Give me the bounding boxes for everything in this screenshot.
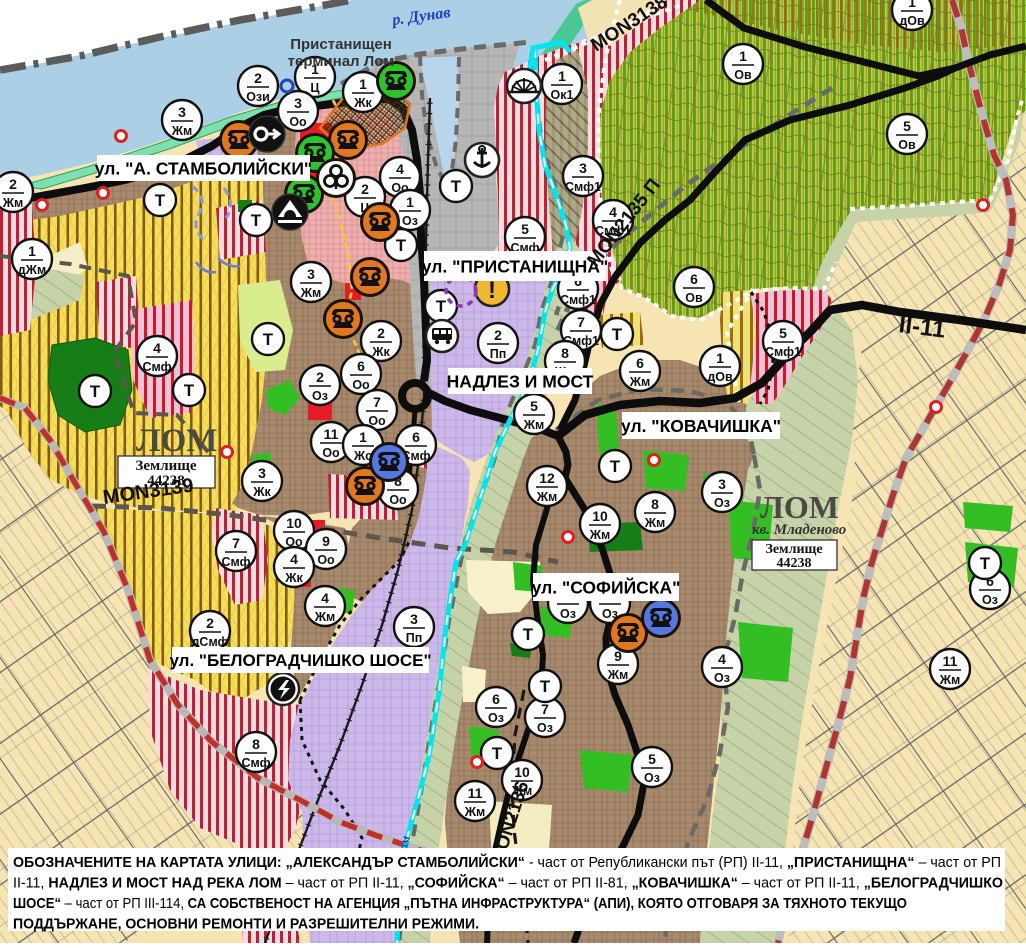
svg-text:НАДЛЕЗ И МОСТ: НАДЛЕЗ И МОСТ <box>447 371 594 391</box>
svg-text:Оз: Оз <box>982 593 998 607</box>
svg-text:2: 2 <box>206 615 214 631</box>
svg-text:!: ! <box>488 277 496 304</box>
svg-text:Т: Т <box>436 297 447 316</box>
svg-text:Оо: Оо <box>389 493 407 507</box>
svg-text:6: 6 <box>690 271 698 287</box>
svg-text:Оо: Оо <box>322 446 340 460</box>
svg-text:ЛОМ: ЛОМ <box>136 423 217 459</box>
svg-text:6: 6 <box>357 358 365 374</box>
svg-text:Ок1: Ок1 <box>551 88 574 102</box>
svg-text:Оо: Оо <box>352 378 370 392</box>
svg-text:4: 4 <box>396 161 404 177</box>
svg-text:1: 1 <box>739 48 747 64</box>
svg-text:Оз: Оз <box>312 389 328 403</box>
svg-text:Оз: Оз <box>644 771 660 785</box>
svg-text:II-11: II-11 <box>897 311 947 343</box>
svg-text:6: 6 <box>636 355 644 371</box>
svg-text:Ц: Ц <box>310 81 320 95</box>
svg-text:Т: Т <box>263 330 274 349</box>
svg-text:1: 1 <box>406 194 414 210</box>
svg-text:дЖм: дЖм <box>18 263 46 277</box>
svg-text:Т: Т <box>540 677 551 696</box>
svg-text:Пристанищен: Пристанищен <box>290 36 392 53</box>
svg-text:Жм: Жм <box>939 673 961 687</box>
svg-text:Жм: Жм <box>314 610 336 624</box>
svg-text:3: 3 <box>294 95 302 111</box>
svg-text:Т: Т <box>523 625 534 644</box>
svg-text:Смф: Смф <box>241 756 270 770</box>
svg-text:Оз: Оз <box>402 214 418 228</box>
svg-text:дСмф: дСмф <box>192 635 229 649</box>
svg-text:2: 2 <box>361 181 369 197</box>
svg-text:Т: Т <box>612 325 623 344</box>
svg-text:6: 6 <box>412 429 420 445</box>
svg-text:2: 2 <box>254 70 262 86</box>
svg-text:ЛОМ: ЛОМ <box>760 489 839 525</box>
svg-text:Оо: Оо <box>289 115 307 129</box>
svg-text:Жм: Жм <box>464 805 486 819</box>
svg-text:1: 1 <box>908 0 916 10</box>
svg-text:Оз: Оз <box>560 607 576 621</box>
svg-text:Оз: Оз <box>714 671 730 685</box>
svg-text:10: 10 <box>592 508 608 524</box>
svg-text:10: 10 <box>514 764 530 780</box>
svg-text:Смф: Смф <box>142 360 171 374</box>
svg-text:2: 2 <box>377 325 385 341</box>
svg-text:1: 1 <box>28 243 36 259</box>
svg-text:ул. "А. СТАМБОЛИЙСКИ": ул. "А. СТАМБОЛИЙСКИ" <box>95 157 312 178</box>
svg-text:3: 3 <box>178 104 186 120</box>
svg-text:Жм: Жм <box>629 375 651 389</box>
svg-text:Жм: Жм <box>644 516 666 530</box>
svg-text:Жк: Жк <box>353 96 372 110</box>
svg-text:1: 1 <box>558 68 566 84</box>
svg-text:Жм: Жм <box>589 528 611 542</box>
svg-text:ул. "ПРИСТАНИЩНА": ул. "ПРИСТАНИЩНА" <box>422 256 609 276</box>
svg-text:44238: 44238 <box>777 556 812 571</box>
svg-text:Ов: Ов <box>685 291 703 305</box>
svg-text:Жк: Жк <box>371 345 390 359</box>
svg-text:5: 5 <box>903 118 911 134</box>
svg-text:2: 2 <box>494 327 502 343</box>
svg-text:Пп: Пп <box>490 347 507 361</box>
svg-text:Ов: Ов <box>898 138 916 152</box>
svg-text:ПОДДЪРЖАНЕ, ОСНОВНИ РЕМОНТИ И: ПОДДЪРЖАНЕ, ОСНОВНИ РЕМОНТИ И РАЗРЕШИТЕЛ… <box>13 916 479 933</box>
svg-text:ул. "БЕЛОГРАДЧИШКО ШОСЕ": ул. "БЕЛОГРАДЧИШКО ШОСЕ" <box>169 651 431 670</box>
svg-text:Землище: Землище <box>135 458 197 474</box>
svg-text:Оз: Оз <box>714 496 730 510</box>
svg-text:Т: Т <box>251 211 262 230</box>
svg-text:3: 3 <box>579 160 587 176</box>
svg-text:3: 3 <box>410 611 418 627</box>
svg-text:Т: Т <box>90 382 101 401</box>
svg-text:Жк: Жк <box>252 485 271 499</box>
svg-text:7: 7 <box>232 535 240 551</box>
svg-text:5: 5 <box>648 751 656 767</box>
svg-text:Жм: Жм <box>523 418 545 432</box>
svg-text:10: 10 <box>286 515 302 531</box>
svg-text:Т: Т <box>980 554 991 573</box>
svg-text:дОв: дОв <box>707 370 733 384</box>
svg-text:Т: Т <box>155 191 166 210</box>
svg-text:Жм: Жм <box>171 124 193 138</box>
svg-text:ОБОЗНАЧЕНИТЕ НА КАРТАТА УЛИЦИ:: ОБОЗНАЧЕНИТЕ НА КАРТАТА УЛИЦИ: „АЛЕКСАНД… <box>13 853 1001 871</box>
svg-text:Жм: Жм <box>300 286 322 300</box>
svg-text:3: 3 <box>258 465 266 481</box>
svg-text:Смф1: Смф1 <box>560 293 596 307</box>
svg-text:7: 7 <box>577 314 585 330</box>
svg-text:Пп: Пп <box>406 631 423 645</box>
svg-text:5: 5 <box>779 325 787 341</box>
svg-text:Оо: Оо <box>317 553 335 567</box>
svg-text:Т: Т <box>492 744 503 763</box>
svg-text:Ози: Ози <box>246 90 270 104</box>
svg-text:11: 11 <box>324 426 339 442</box>
svg-text:8: 8 <box>252 736 260 752</box>
svg-text:8: 8 <box>651 496 659 512</box>
svg-text:7: 7 <box>541 701 549 717</box>
svg-text:12: 12 <box>539 470 555 486</box>
svg-text:5: 5 <box>530 398 538 414</box>
svg-text:4: 4 <box>321 590 329 606</box>
svg-text:Смф: Смф <box>221 555 250 569</box>
svg-text:4: 4 <box>153 340 161 356</box>
svg-text:2: 2 <box>316 369 324 385</box>
svg-text:2: 2 <box>9 176 17 192</box>
svg-text:Жм: Жм <box>2 196 24 210</box>
svg-text:1: 1 <box>359 76 367 92</box>
svg-text:1: 1 <box>716 350 724 366</box>
svg-text:терминал Лом: терминал Лом <box>288 53 395 70</box>
svg-text:11: 11 <box>468 785 483 801</box>
svg-text:3: 3 <box>307 266 315 282</box>
svg-text:Жм: Жм <box>607 668 629 682</box>
svg-text:5: 5 <box>521 221 529 237</box>
svg-text:Жк: Жк <box>284 571 303 585</box>
svg-text:Землище: Землище <box>765 542 822 557</box>
svg-text:Смф1: Смф1 <box>565 180 601 194</box>
svg-text:9: 9 <box>322 533 330 549</box>
svg-text:7: 7 <box>373 394 381 410</box>
svg-text:Т: Т <box>610 457 621 476</box>
svg-text:II-11, НАДЛЕЗ И МОСТ НАД РЕКА: II-11, НАДЛЕЗ И МОСТ НАД РЕКА ЛОМ – част… <box>13 874 1003 892</box>
svg-text:4: 4 <box>718 651 726 667</box>
svg-text:ул. "КОВАЧИШКА": ул. "КОВАЧИШКА" <box>621 416 781 436</box>
svg-text:Т: Т <box>396 236 407 255</box>
svg-text:Ов: Ов <box>734 68 752 82</box>
svg-text:3: 3 <box>718 476 726 492</box>
svg-text:Оз: Оз <box>488 711 504 725</box>
svg-text:11: 11 <box>943 653 958 669</box>
svg-text:6: 6 <box>492 691 500 707</box>
svg-text:8: 8 <box>561 345 569 361</box>
svg-text:ул. "СОФИЙСКА": ул. "СОФИЙСКА" <box>532 576 681 597</box>
svg-text:ШОСЕ“ – част от РП III-114, СА: ШОСЕ“ – част от РП III-114, СА СОБСТВЕНО… <box>13 895 907 912</box>
svg-text:Смф1: Смф1 <box>765 345 801 359</box>
svg-text:Т: Т <box>451 177 462 196</box>
svg-text:4: 4 <box>290 551 298 567</box>
svg-text:Жм: Жм <box>536 490 558 504</box>
svg-text:кв. Младеново: кв. Младеново <box>752 522 846 538</box>
svg-text:дОв: дОв <box>899 14 925 28</box>
svg-text:Т: Т <box>184 381 195 400</box>
svg-text:1: 1 <box>359 429 367 445</box>
svg-text:Оз: Оз <box>537 721 553 735</box>
